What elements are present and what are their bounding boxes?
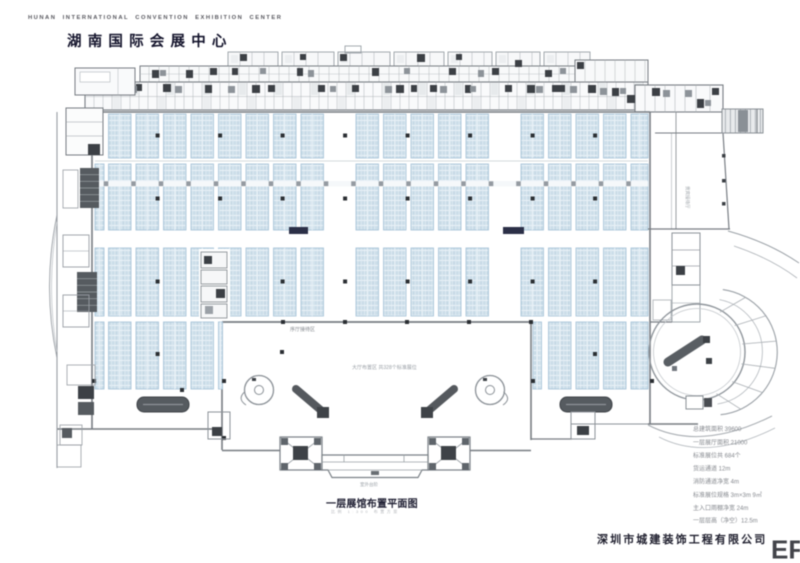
svg-text:主入口雨棚净宽 24m: 主入口雨棚净宽 24m (693, 504, 748, 512)
svg-text:标准展位共 684个: 标准展位共 684个 (693, 452, 741, 460)
svg-text:湖南国际会展中心: 湖南国际会展中心 (67, 32, 233, 50)
svg-text:大厅布置区 共328个标准展位: 大厅布置区 共328个标准展位 (352, 364, 417, 371)
svg-text:比例 1:300 布置方案: 比例 1:300 布置方案 (331, 508, 400, 514)
svg-text:室外台阶: 室外台阶 (360, 481, 378, 488)
svg-text:贵宾接待厅: 贵宾接待厅 (684, 186, 691, 209)
svg-text:一层层高（净空）12.5m: 一层层高（净空）12.5m (693, 517, 758, 525)
svg-text:序厅接待区: 序厅接待区 (290, 326, 315, 333)
svg-text:货运通道 12m: 货运通道 12m (693, 465, 730, 473)
svg-text:总建筑面积 39600: 总建筑面积 39600 (693, 425, 742, 433)
svg-text:标准展位规格 3m×3m 9㎡: 标准展位规格 3m×3m 9㎡ (693, 491, 762, 499)
svg-text:消防通道净宽 4m: 消防通道净宽 4m (693, 478, 739, 486)
svg-text:深圳市城建装饰工程有限公司: 深圳市城建装饰工程有限公司 (597, 532, 767, 546)
svg-text:HUNAN INTERNATIONAL CONVENTI: HUNAN INTERNATIONAL CONVENTION EXHIBITIO… (28, 15, 282, 21)
svg-text:EF: EF (771, 535, 800, 563)
svg-text:一层展厅面积 21000: 一层展厅面积 21000 (693, 439, 748, 447)
